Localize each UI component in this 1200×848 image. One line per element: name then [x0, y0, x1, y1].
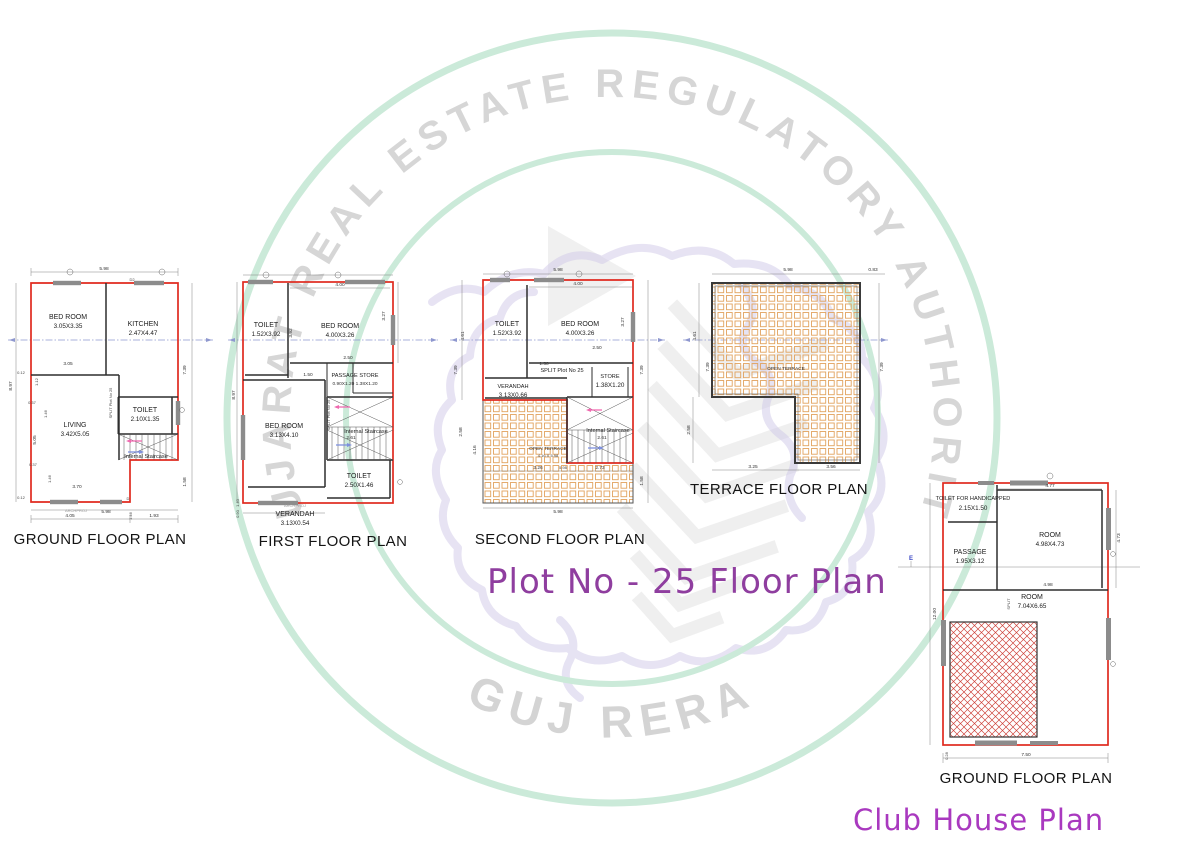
ground-kitchen-label: KITCHEN	[128, 321, 159, 328]
first-dim-toilet-h: 3.92	[288, 328, 294, 338]
club-dim-right: 4.73	[1116, 533, 1122, 543]
terrace-dim-top: 5.98	[783, 267, 793, 273]
second-staircase-label: Internal Staircase	[586, 428, 630, 434]
ground-dim-w10: 0.12	[17, 495, 26, 500]
club-passage-size: 1.95X3.12	[956, 558, 985, 565]
terrace-dim-l3: 2.58	[686, 425, 692, 435]
second-plan-title: SECOND FLOOR PLAN	[475, 531, 645, 548]
ground-staircase-label: Internal Staircase	[124, 454, 168, 460]
ground-dim-top: 5.98	[99, 266, 109, 272]
ground-door-d: D	[127, 496, 130, 501]
club-room2-size: 7.04X6.65	[1018, 603, 1047, 610]
ground-dim-w8: 0.37	[29, 462, 38, 467]
ground-floor-plan: 5.98 D2 BED ROOM 3.05X3.35 KITCHEN 2.47X…	[8, 258, 213, 563]
club-split-label: SPLIT	[1006, 598, 1011, 610]
ground-bedroom-size: 3.05X3.35	[54, 323, 83, 330]
ground-toilet-size: 2.10X1.35	[131, 416, 160, 423]
club-dim-mid: 4.98	[1043, 582, 1053, 588]
terrace-plan-title: TERRACE FLOOR PLAN	[690, 481, 868, 498]
second-toilet-size: 1.52X3.92	[493, 330, 522, 337]
first-toilet1-size: 1.52X3.92	[252, 331, 281, 338]
second-dim-r2: 7.39	[639, 365, 645, 375]
ground-split-label: SPLIT Plot No 25	[108, 387, 113, 419]
second-bedroom-size: 4.00X3.26	[566, 330, 595, 337]
second-store-label: STORE	[600, 374, 619, 380]
ground-dim-bsmall: 1.46	[128, 511, 133, 520]
second-dim-b3: 2.73	[595, 465, 605, 471]
club-dim-left: 12.00	[932, 608, 938, 620]
first-dim-m2: 1.50	[303, 372, 313, 378]
second-dim-b2: 5.98	[559, 465, 568, 470]
terrace-floor-plan: 5.98 0.83 OPEN TERRACE 4.61 7.39 2.58 7.…	[683, 252, 888, 512]
first-plan-title: FIRST FLOOR PLAN	[259, 533, 408, 550]
terrace-open-terrace-label: OPEN TERRACE	[767, 366, 805, 372]
second-dim-top2: 4.00	[573, 281, 583, 287]
second-dim-r1: 3.27	[620, 317, 626, 327]
second-store-size: 1.38X1.20	[596, 382, 625, 389]
first-archproj-label: ARCHPROJ	[284, 503, 306, 508]
club-dim-bottom: 7.50	[1021, 752, 1031, 758]
first-walls	[241, 280, 403, 505]
terrace-dim-l1: 4.61	[692, 331, 698, 341]
club-passage-label: PASSAGE	[954, 549, 987, 556]
second-dim-b1: 3.26	[533, 465, 543, 471]
club-room1-label: ROOM	[1039, 532, 1061, 539]
second-dim-m2: 1.50	[539, 361, 549, 367]
ground-plan-title: GROUND FLOOR PLAN	[14, 531, 187, 548]
second-dim-l3: 2.58	[458, 427, 464, 437]
terrace-dim-top-right: 0.83	[868, 267, 878, 273]
ground-dim-bottom1: 5.98	[101, 509, 111, 515]
first-toilet2-label: TOILET	[347, 473, 372, 480]
ground-bedroom-label: BED ROOM	[49, 314, 87, 321]
ground-living-size: 3.42X5.05	[61, 431, 90, 438]
ground-dim-w9: 1.46	[47, 474, 52, 483]
first-floor-plan: 4.00 TOILET 1.52X3.92 BED ROOM 4.00X3.26…	[228, 255, 438, 565]
first-dim-m1: 2.50	[343, 355, 353, 361]
ground-dim-w6: 5.05	[32, 435, 38, 445]
ground-texts: 5.98 D2 BED ROOM 3.05X3.35 KITCHEN 2.47X…	[8, 266, 188, 548]
second-split-label: SPLIT Plot No 25	[540, 368, 583, 374]
watermark-bottom-text: GUJ RERA	[461, 665, 763, 748]
ground-centerline	[8, 338, 213, 342]
second-terrace-size: 4.16 X 5.98	[538, 453, 559, 458]
first-bedroom2-label: BED ROOM	[265, 423, 303, 430]
club-house-plan: E TOILET FOR HANDICAPPED 2.15X1.50 ROOM …	[880, 468, 1140, 808]
ground-dim-w4: 0.37	[28, 400, 37, 405]
first-verandah-label: VERANDAH	[276, 511, 315, 518]
terrace-dim-b2: 3.56	[826, 464, 836, 470]
ground-door-d2: D2	[129, 277, 135, 282]
first-dim-top: 4.00	[335, 282, 345, 288]
second-bedroom-label: BED ROOM	[561, 321, 599, 328]
first-split-label: SPLIT Plot No 25	[326, 399, 331, 431]
first-passage-store-size: 0.90X1.20 1.38X1.20	[332, 381, 377, 387]
ground-dim-right: 7.39	[182, 365, 188, 375]
terrace-dim-l2: 7.39	[705, 362, 711, 372]
ground-living-label: LIVING	[64, 422, 87, 429]
first-toilet1-label: TOILET	[254, 322, 279, 329]
terrace-dim-b1: 3.25	[748, 464, 758, 470]
first-staircase-label: Internal Staircase	[344, 429, 388, 435]
first-bedroom1-size: 4.00X3.26	[326, 332, 355, 339]
second-floor-plan: 5.98 4.00 TOILET 1.52X3.92 BED ROOM 4.00…	[450, 252, 665, 562]
ground-dim-right-bottom: 1.58	[182, 477, 188, 487]
club-dim-top: 4.77	[1045, 483, 1055, 489]
club-toilet-label: TOILET FOR HANDICAPPED	[936, 496, 1011, 502]
club-title: Club House Plan	[853, 803, 1104, 837]
first-texts: 4.00 TOILET 1.52X3.92 BED ROOM 4.00X3.26…	[231, 282, 407, 550]
second-dim-m3: 2.61	[597, 435, 607, 441]
second-dim-l1: 4.61	[460, 331, 466, 341]
ground-dim-w7: 3.70	[72, 484, 82, 490]
second-dim-top: 5.98	[553, 267, 563, 273]
ground-dim-w1: 0.12	[17, 370, 26, 375]
ground-dim-bottom3: 1.93	[149, 513, 159, 519]
second-verandah-label: VERANDAH	[497, 384, 528, 390]
club-toilet-size: 2.15X1.50	[959, 505, 988, 512]
club-plan-title: GROUND FLOOR PLAN	[940, 770, 1113, 787]
first-dim-m3: 2.61	[346, 435, 356, 441]
ground-stair-arrows	[126, 439, 144, 454]
ground-dim-left: 8.97	[8, 381, 14, 391]
ground-dimension-lines	[16, 268, 192, 523]
second-dim-bottom: 5.98	[553, 509, 563, 515]
ground-dim-w2: 3.05	[63, 361, 73, 367]
terrace-walls	[712, 283, 860, 463]
second-dim-l2: 7.39	[453, 365, 459, 375]
ground-dim-w3: 1.12	[34, 377, 39, 386]
plot-title: Plot No - 25 Floor Plan	[487, 562, 887, 602]
first-bedroom2-size: 3.13X4.10	[270, 432, 299, 439]
club-room2-label: ROOM	[1021, 594, 1043, 601]
second-verandah-size: 3.13X0.66	[499, 392, 528, 399]
floor-plan-sheet: { "watermark": { "ring_text": "GUJARAT R…	[0, 0, 1200, 848]
ground-dim-w5: 1.46	[43, 409, 48, 418]
ground-archproj-label: ARCHPROJ	[65, 508, 87, 513]
club-dim-bottom-left: 0.28	[944, 751, 949, 760]
second-dim-l4: 4.16	[472, 445, 478, 455]
ground-kitchen-size: 2.47X4.47	[129, 330, 158, 337]
first-dim-left: 8.97	[231, 390, 237, 400]
first-dim-bl1: 1.40	[235, 498, 240, 507]
first-verandah-size: 3.13X0.54	[281, 520, 310, 527]
first-dim-right: 3.27	[381, 311, 387, 321]
second-toilet-label: TOILET	[495, 321, 520, 328]
ground-dim-bottom2: 4.05	[65, 513, 75, 519]
first-toilet2-size: 2.50X1.46	[345, 482, 374, 489]
first-dim-bl2: 0.90	[235, 509, 240, 518]
second-terrace-label: OPEN TERRACE	[529, 446, 567, 452]
ground-toilet-label: TOILET	[133, 407, 158, 414]
terrace-dim-r1: 7.39	[879, 362, 885, 372]
first-bedroom1-label: BED ROOM	[321, 323, 359, 330]
club-gridline: E	[898, 556, 1140, 567]
second-dim-r3: 1.58	[639, 476, 645, 486]
second-dim-m1: 2.50	[592, 345, 602, 351]
first-passage-store-label: PASSAGE STORE	[331, 373, 378, 379]
club-room1-size: 4.98X4.73	[1036, 541, 1065, 548]
